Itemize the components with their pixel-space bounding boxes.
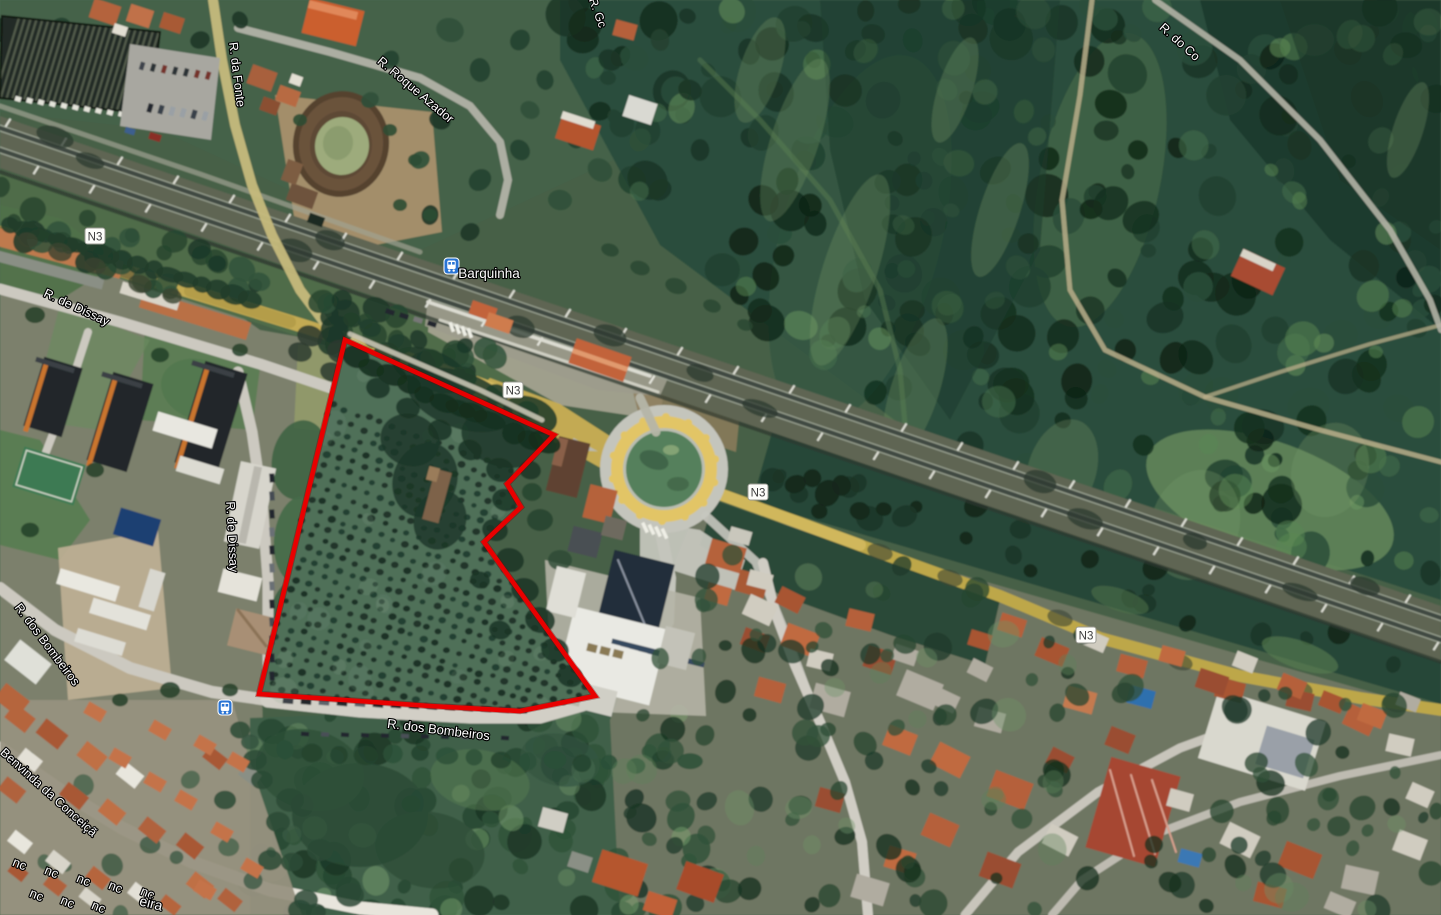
svg-text:N3: N3: [751, 488, 766, 500]
svg-text:Barquinha: Barquinha: [458, 266, 520, 281]
svg-text:N3: N3: [1079, 631, 1094, 643]
svg-text:N3: N3: [88, 232, 103, 244]
svg-text:N3: N3: [506, 386, 521, 398]
